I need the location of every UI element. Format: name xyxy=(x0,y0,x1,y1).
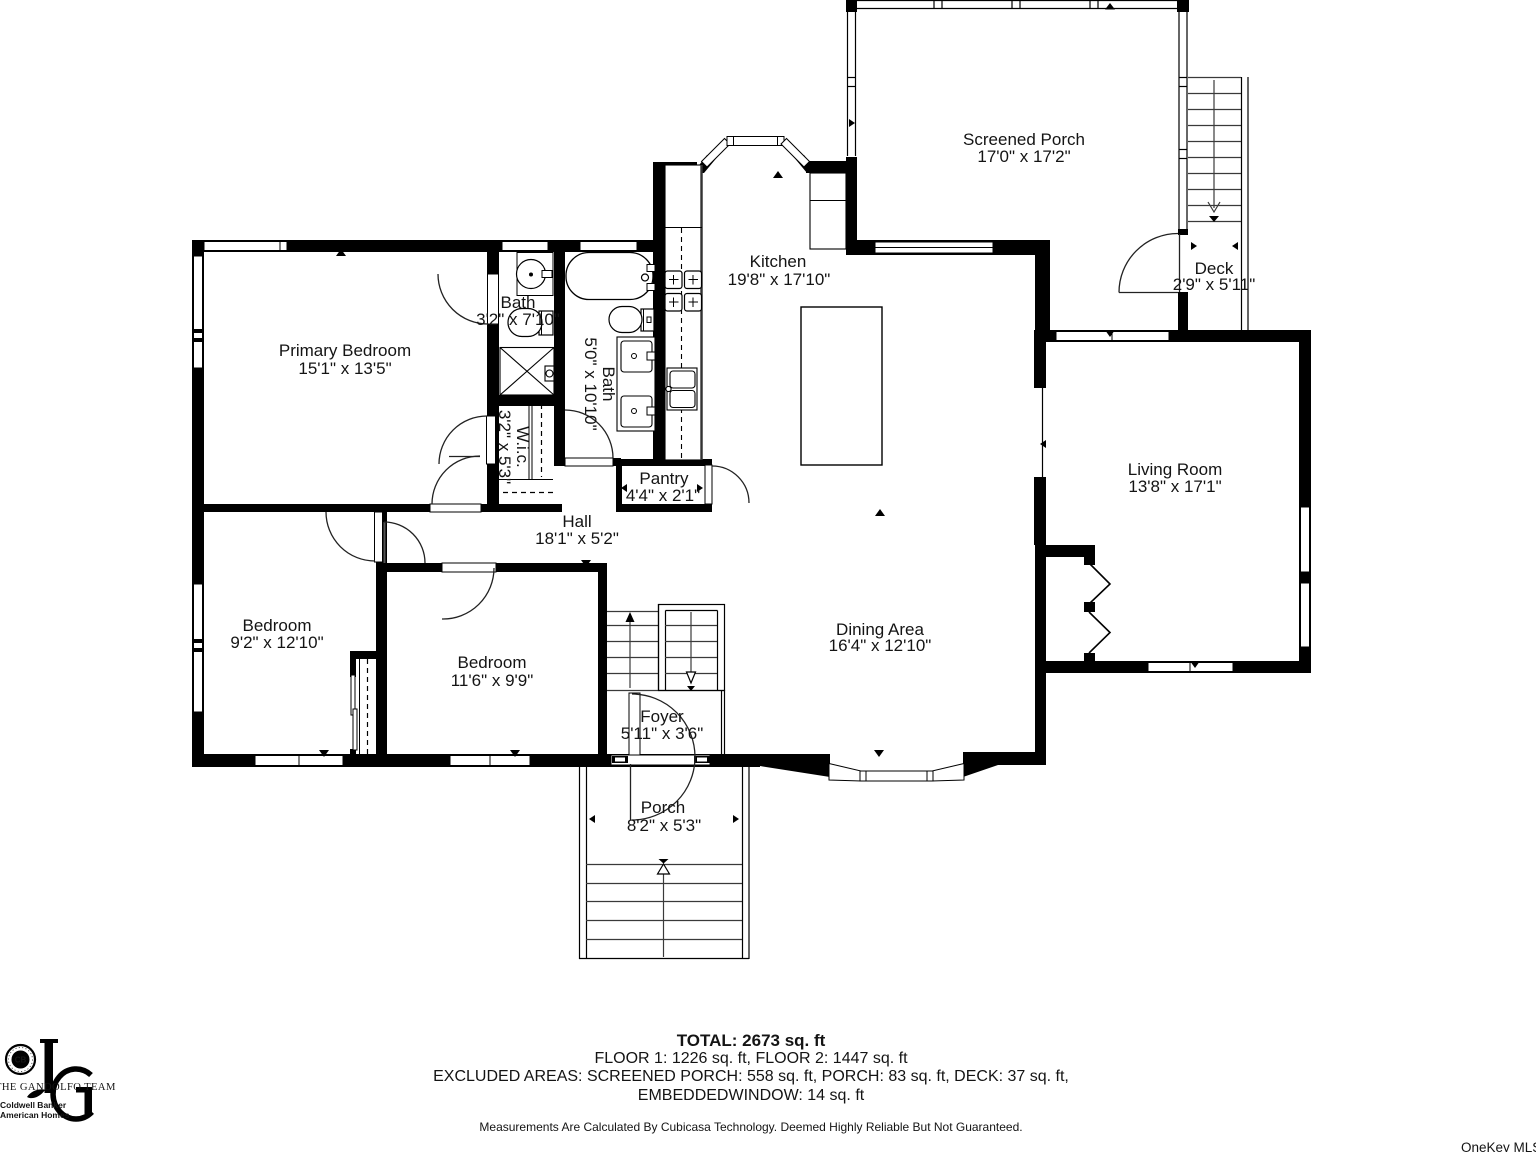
svg-text:CB: CB xyxy=(15,1056,27,1065)
svg-text:Kitchen: Kitchen xyxy=(750,252,807,271)
svg-text:OneKey MLS: OneKey MLS xyxy=(1461,1140,1536,1152)
svg-text:Primary Bedroom: Primary Bedroom xyxy=(279,341,411,360)
svg-text:5'11" x 3'6": 5'11" x 3'6" xyxy=(621,724,704,743)
svg-text:16'4" x 12'10": 16'4" x 12'10" xyxy=(829,636,932,655)
svg-text:FLOOR 1: 1226 sq. ft, FLOOR 2:: FLOOR 1: 1226 sq. ft, FLOOR 2: 1447 sq. … xyxy=(594,1050,908,1067)
svg-text:THE GANDOLFO TEAM: THE GANDOLFO TEAM xyxy=(0,1082,116,1093)
svg-text:Bedroom: Bedroom xyxy=(458,653,527,672)
svg-text:EXCLUDED AREAS: SCREENED PORCH: EXCLUDED AREAS: SCREENED PORCH: 558 sq. … xyxy=(433,1068,1069,1085)
svg-text:3'2" x 5'3": 3'2" x 5'3" xyxy=(495,410,514,484)
svg-text:15'1" x 13'5": 15'1" x 13'5" xyxy=(298,359,391,378)
svg-text:W.i.c.: W.i.c. xyxy=(513,426,532,468)
svg-text:Measurements Are Calculated By: Measurements Are Calculated By Cubicasa … xyxy=(479,1120,1022,1134)
svg-text:5'0" x 10'10": 5'0" x 10'10" xyxy=(581,337,600,430)
svg-text:EMBEDDEDWINDOW: 14 sq. ft: EMBEDDEDWINDOW: 14 sq. ft xyxy=(638,1087,865,1104)
svg-text:3'2" x 7'10": 3'2" x 7'10" xyxy=(476,310,560,329)
svg-text:TOTAL: 2673 sq. ft: TOTAL: 2673 sq. ft xyxy=(677,1031,826,1050)
svg-text:American Homes: American Homes xyxy=(0,1110,70,1120)
svg-text:13'8" x 17'1": 13'8" x 17'1" xyxy=(1128,477,1221,496)
svg-text:Porch: Porch xyxy=(641,798,685,817)
svg-text:11'6" x 9'9": 11'6" x 9'9" xyxy=(451,671,534,690)
svg-text:Bath: Bath xyxy=(599,367,618,402)
svg-text:8'2" x 5'3": 8'2" x 5'3" xyxy=(627,816,701,835)
svg-text:2'9" x 5'11": 2'9" x 5'11" xyxy=(1173,275,1256,294)
svg-text:Coldwell Banker: Coldwell Banker xyxy=(0,1100,67,1110)
svg-text:19'8" x 17'10": 19'8" x 17'10" xyxy=(728,270,831,289)
svg-text:9'2" x 12'10": 9'2" x 12'10" xyxy=(230,633,323,652)
svg-text:18'1" x 5'2": 18'1" x 5'2" xyxy=(535,529,619,548)
svg-text:4'4" x 2'1": 4'4" x 2'1" xyxy=(626,486,700,505)
svg-text:17'0" x 17'2": 17'0" x 17'2" xyxy=(977,147,1070,166)
